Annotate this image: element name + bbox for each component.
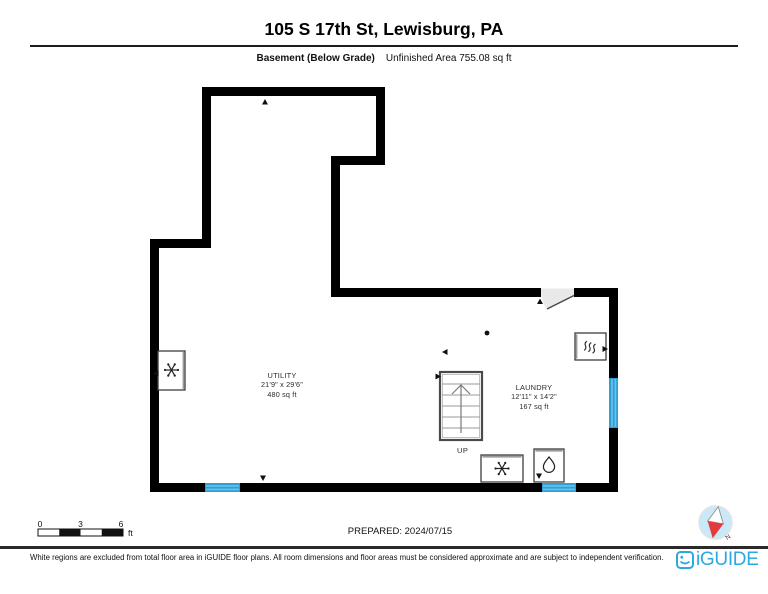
floor-label: Basement (Below Grade)	[256, 53, 374, 64]
room-area: 167 sq ft	[464, 402, 604, 411]
area-label: Unfinished Area 755.08 sq ft	[386, 53, 512, 64]
floorplan-page: 105 S 17th St, Lewisburg, PA Basement (B…	[0, 0, 768, 594]
washer-box	[481, 455, 523, 482]
footer-divider	[0, 546, 768, 549]
prepared-date-label: PREPARED: 2024/07/15	[300, 526, 500, 537]
scale-bar	[38, 529, 123, 536]
room-dimensions: 21'9" x 29'6"	[212, 380, 352, 389]
stairs-up-label: UP	[457, 446, 468, 455]
floorplan-canvas	[0, 0, 768, 594]
window	[542, 483, 576, 492]
footer-disclaimer: White regions are excluded from total fl…	[30, 553, 670, 562]
room-dimensions: 12'11" x 14'2"	[464, 392, 604, 401]
iguide-logo-icon	[677, 552, 693, 568]
page-title: 105 S 17th St, Lewisburg, PA	[0, 19, 768, 40]
plan-subtitle: Basement (Below Grade) Unfinished Area 7…	[0, 53, 768, 64]
window	[205, 483, 240, 492]
header-divider	[30, 45, 738, 47]
room-name: LAUNDRY	[464, 383, 604, 392]
iguide-brand-text: iGUIDE	[696, 549, 759, 571]
window	[609, 378, 618, 428]
room-area: 480 sq ft	[212, 390, 352, 399]
laundry-room-label: LAUNDRY 12'11" x 14'2" 167 sq ft	[464, 383, 604, 411]
heater-box	[575, 333, 606, 360]
room-name: UTILITY	[212, 371, 352, 380]
ac-unit-box	[158, 351, 185, 390]
scale-tick-0: 0	[30, 519, 50, 529]
scale-unit-label: ft	[128, 528, 133, 538]
scale-tick-3: 3	[71, 519, 91, 529]
door-swing	[541, 289, 574, 310]
utility-room-label: UTILITY 21'9" x 29'6" 480 sq ft	[212, 371, 352, 399]
